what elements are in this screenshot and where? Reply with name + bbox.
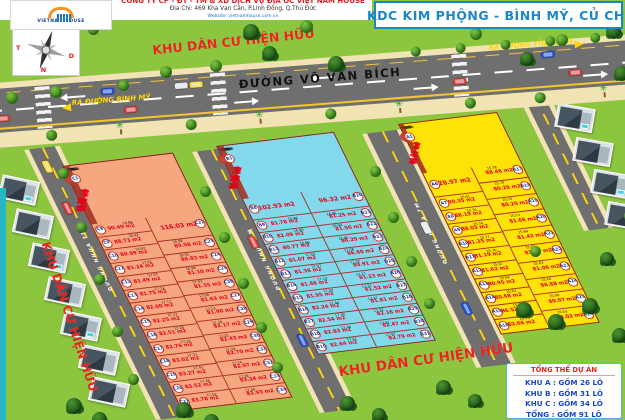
plot-id-badge: B20: [351, 191, 365, 201]
plot-area-label: 82.51 m2: [158, 329, 188, 338]
lane-arrow-right-icon: [234, 100, 256, 104]
car-window: [463, 304, 470, 314]
logo-arc-icon: [48, 7, 74, 18]
plot-area-label: 82.25 m2: [152, 316, 182, 325]
masterplan-map: VIETNAM HOUSE CÔNG TY CP - ĐT - TM & XD …: [0, 0, 625, 420]
plot-id-badge: B9: [255, 221, 269, 231]
tree-icon: [238, 278, 249, 289]
palm-tree-icon: ✳: [115, 121, 124, 132]
house-roof: [608, 204, 625, 227]
plot-id-badge: B27: [395, 280, 409, 290]
existing-area-label-top: KHU DÂN CƯ HIỆN HỮU: [152, 26, 316, 58]
canal-strip: [0, 188, 6, 420]
tree-icon: [118, 80, 129, 91]
pool-icon: [86, 331, 95, 338]
car-icon: [296, 334, 308, 346]
tree-icon: [128, 374, 139, 385]
tree-icon: [556, 34, 568, 46]
car-window: [103, 89, 112, 94]
tree-icon: [66, 398, 82, 414]
plot-id-badge: B17: [302, 317, 316, 327]
plot-id-badge: C25: [215, 264, 229, 274]
plot-area-label: 81.49 m2: [132, 276, 162, 285]
plot-area-label: 81.24 m2: [126, 263, 156, 272]
house-icon: [0, 174, 40, 205]
company-address: Địa Chỉ: 469 Kha Vạn Cân, P.Linh Đông, Q…: [118, 6, 368, 12]
plot-id-badge: B11: [267, 245, 281, 255]
car-icon: [189, 81, 202, 88]
plot-id-badge: C24: [209, 251, 223, 261]
tree-icon: [112, 326, 123, 337]
tree-icon: [612, 328, 625, 343]
company-name: CÔNG TY CP - ĐT - TM & XD DỊCH VỤ ĐỊA ỐC…: [118, 0, 368, 5]
tree-icon: [58, 168, 69, 179]
tree-icon: [204, 414, 219, 420]
exit-left-arrow-icon: [58, 103, 72, 112]
car-window: [192, 82, 201, 87]
pool-icon: [580, 123, 589, 129]
car-window: [126, 107, 135, 112]
plot-id-badge: B22: [365, 220, 379, 230]
tree-icon: [160, 66, 172, 78]
plot-id-badge: B21: [359, 208, 373, 218]
tree-icon: [370, 166, 381, 177]
car-window: [177, 83, 186, 88]
tree-icon: [200, 186, 211, 197]
car-icon: [453, 78, 466, 85]
tree-icon: [530, 246, 541, 257]
lane-arrow-right-icon: [583, 73, 605, 77]
palm-tree-icon: ✳: [599, 84, 608, 95]
plot-id-badge: B24: [377, 244, 391, 254]
plot-id-badge: A20: [534, 213, 548, 223]
compass-west-label: T: [16, 44, 20, 52]
plot-area-label: 83.27 m2: [178, 369, 208, 378]
tree-icon: [548, 314, 564, 330]
plot-id-badge: C31: [255, 345, 269, 355]
car-window: [455, 79, 464, 84]
tree-icon: [300, 20, 313, 33]
tree-icon: [388, 212, 399, 223]
tree-icon: [614, 66, 625, 81]
plot-id-badge: C29: [242, 318, 256, 328]
tree-icon: [6, 92, 18, 104]
legend-box: TỔNG THỂ DỰ ÁN KHU A : GỒM 26 LÔKHU B : …: [506, 363, 622, 419]
plot-area-label: 116.03 m2: [159, 221, 199, 232]
plot-id-badge: B25: [383, 256, 397, 266]
house-icon: [12, 208, 54, 239]
plot-id-badge: B15: [291, 293, 305, 303]
plot-area-label: 90.49 m2: [107, 223, 137, 232]
compass-east-label: D: [69, 52, 74, 60]
tree-icon: [92, 412, 107, 420]
legend-row: KHU B : GỒM 31 LÔ: [507, 389, 621, 398]
palm-tree-icon: ✳: [394, 100, 403, 111]
tree-icon: [176, 402, 192, 418]
palm-tree-icon: ✳: [255, 111, 264, 122]
car-window: [543, 52, 552, 57]
plot-id-badge: B26: [389, 268, 403, 278]
pool-icon: [616, 189, 625, 195]
logo-buildings-icon: [57, 14, 71, 22]
project-title: KDC KIM PHỘNG - BÌNH MỸ, CỦ CHI: [367, 8, 625, 23]
plot-area-label: 83.78 m2: [191, 395, 221, 404]
car-icon: [124, 106, 137, 113]
lane-arrow-right-icon: [414, 86, 436, 90]
legend-row: KHU C : GỒM 34 LÔ: [507, 399, 621, 408]
tree-icon: [94, 274, 105, 285]
tree-icon: [76, 222, 87, 233]
tree-icon: [50, 86, 62, 98]
plot-id-badge: C28: [235, 304, 249, 314]
plot-area-label: 83.52 m2: [184, 382, 214, 391]
tree-icon: [219, 232, 230, 243]
tree-icon: [600, 252, 614, 266]
plot-id-badge: B23: [371, 232, 385, 242]
tree-icon: [516, 302, 532, 318]
pool-icon: [24, 195, 33, 202]
legend-row: KHU A : GỒM 26 LÔ: [507, 378, 621, 387]
car-icon: [0, 115, 10, 122]
exit-right-arrow-icon: [574, 39, 588, 48]
plot-area-label: 82.76 m2: [165, 342, 195, 351]
plot-id-badge: B31: [418, 329, 432, 339]
tree-icon: [256, 322, 267, 333]
plot-id-badge: C34: [275, 385, 289, 395]
car-icon: [175, 82, 188, 89]
plot-id-badge: B16: [297, 305, 311, 315]
tree-icon: [340, 396, 355, 411]
plot-id-badge: A21: [542, 229, 556, 239]
plot-id-badge: A17: [511, 165, 525, 175]
tree-icon: [272, 362, 283, 373]
plot-area-label: 81.75 m2: [139, 289, 169, 298]
plot-id-badge: B12: [273, 257, 287, 267]
tree-icon: [328, 56, 344, 72]
car-window: [571, 70, 580, 75]
tree-icon: [436, 380, 451, 395]
plot-id-badge: C27: [229, 291, 243, 301]
tree-icon: [262, 46, 277, 61]
car-icon: [541, 51, 554, 58]
plot-id-badge: B19: [314, 342, 328, 352]
house-wing: [103, 354, 116, 372]
tree-icon: [520, 52, 534, 66]
car-icon: [101, 88, 114, 95]
plot-id-badge: A22: [550, 245, 564, 255]
car-window: [0, 116, 8, 121]
plot-id-badge: B14: [285, 281, 299, 291]
plot-id-badge: A18: [519, 181, 533, 191]
house-wing: [597, 146, 610, 163]
plot-id-badge: B13: [279, 269, 293, 279]
plot-id-badge: B28: [400, 293, 414, 303]
crosswalk: [210, 72, 228, 115]
car-window: [298, 335, 305, 345]
house-wing: [37, 218, 50, 236]
plot-id-badge: A24: [566, 277, 580, 287]
tree-icon: [406, 256, 417, 267]
car-icon: [460, 302, 472, 314]
plot-area-label: 80.99 m2: [119, 249, 149, 258]
plot-id-badge: B29: [406, 305, 420, 315]
project-title-box: KDC KIM PHỘNG - BÌNH MỸ, CỦ CHI: [374, 1, 623, 29]
plot-area-label: 96.32 m2: [317, 194, 352, 204]
plot-id-badge: A23: [558, 261, 572, 271]
compass-south-label: N: [41, 66, 46, 74]
tree-icon: [470, 28, 482, 40]
plot-id-badge: B10: [261, 233, 275, 243]
plot-area-label: 83.02 m2: [171, 355, 201, 364]
legend-row: TỔNG : GỒM 91 LÔ: [507, 410, 621, 419]
plot-id-badge: B18: [308, 329, 322, 339]
tree-icon: [243, 24, 259, 40]
plot-area-label: 102.93 m2: [257, 201, 297, 212]
plot-area-label: 82.00 m2: [145, 302, 175, 311]
tree-icon: [372, 408, 386, 420]
house-wing: [113, 386, 126, 404]
legend-title: TỔNG THỂ DỰ ÁN: [513, 366, 615, 376]
plot-id-badge: C33: [268, 372, 282, 382]
company-website: Website: vietnamhouse.com.vn: [118, 14, 368, 19]
company-logo: VIETNAM HOUSE: [10, 0, 112, 30]
tree-icon: [582, 298, 598, 314]
tree-icon: [210, 60, 222, 72]
crosswalk: [451, 54, 469, 97]
plot-area-label: 88.73 m2: [113, 236, 143, 245]
plot-id-badge: A19: [526, 197, 540, 207]
compass-rose: B N T D: [12, 22, 80, 76]
tree-icon: [424, 298, 435, 309]
tree-icon: [468, 394, 482, 408]
plot-id-badge: B30: [412, 317, 426, 327]
plot-area-label: 82.64 m2: [329, 340, 359, 349]
car-icon: [569, 69, 582, 76]
plot-id-badge: C26: [222, 278, 236, 288]
plot-id-badge: C23: [202, 237, 216, 247]
